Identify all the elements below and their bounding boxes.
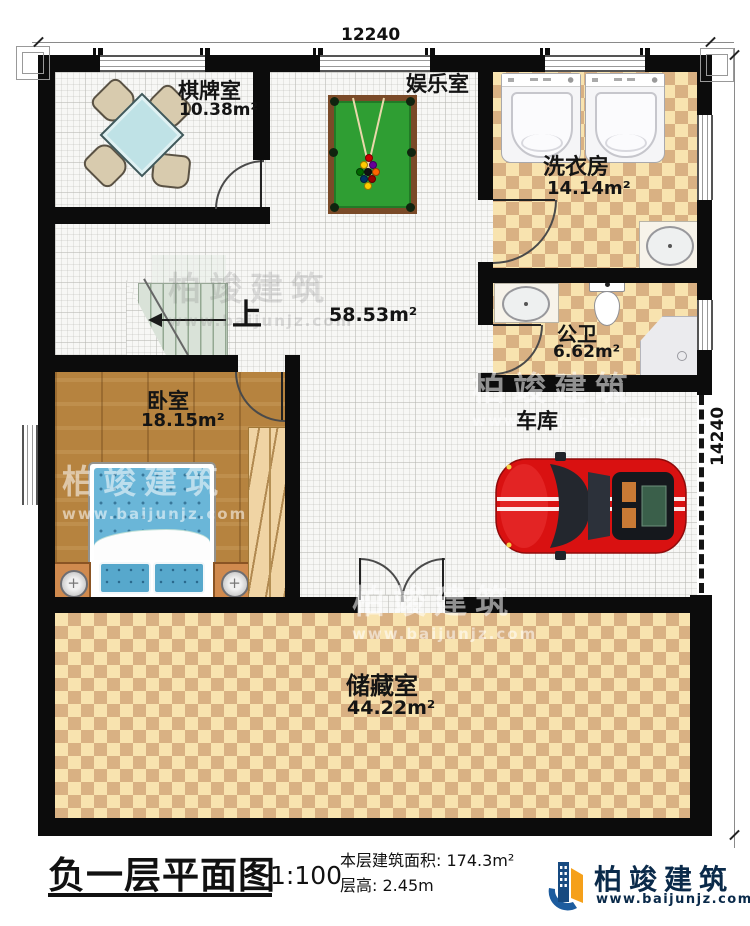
wall-notch [540,48,550,55]
watermark: 柏竣建筑 www.baijunjz.com [62,455,247,523]
wall [478,55,493,200]
stairs-arrow-icon [148,313,162,327]
page-title: 负一层平面图 [48,845,276,899]
washer-drum [595,92,657,158]
stairs-up-label: 上 [232,300,262,332]
pillow [153,562,205,594]
dimension-right-value: 14240 [708,406,728,466]
wall [38,207,270,224]
pool-pocket [329,148,338,157]
room-area-hall: 58.53m² [329,306,417,326]
door-leaf [493,324,541,326]
wall [300,597,358,613]
billiard-ball [364,182,372,190]
room-label-laundry: 洗衣房 [543,156,609,179]
window [320,55,430,72]
floor-plan-canvas: 12240 14240 柏竣建筑 www.baijunjz.com 柏竣建筑 w… [0,0,750,926]
washer-control-panel [502,74,580,87]
pool-table [328,95,417,214]
washer-control-panel [586,74,664,87]
watermark-text: 柏竣建筑 [62,455,247,503]
window [545,55,645,72]
wall-notch [313,48,323,55]
window [22,425,38,505]
room-label-entertainment: 娱乐室 [406,73,469,95]
door-leaf [493,199,555,201]
door-leaf [281,372,283,420]
wall-notch [640,48,650,55]
wall [285,355,300,613]
watermark-text: 柏竣建筑 [472,362,657,410]
window [697,300,713,350]
pillow [99,562,151,594]
room-area-laundry: 14.14m² [547,180,631,199]
washer-drum [511,92,573,158]
door-leaf [260,160,262,207]
floor-height-line: 层高: 2.45m [340,872,434,896]
room-label-chess: 棋牌室 [178,80,241,102]
floor-area-value: 174.3m² [447,851,515,870]
pool-pocket [330,97,339,106]
floor-height-value: 2.45m [383,876,434,895]
room-area-bedroom: 18.15m² [141,412,225,431]
room-area-bathroom: 6.62m² [553,344,620,362]
lamp-icon [60,570,88,598]
pool-pocket [407,148,416,157]
floor-area-label: 本层建筑面积: [340,851,441,870]
title-underline [48,893,272,897]
corner-symbol [16,46,50,80]
wall-notch [93,48,103,55]
floor-area-line: 本层建筑面积: 174.3m² [340,847,514,871]
watermark-url: www.baijunjz.com [472,412,657,430]
corner-symbol [700,48,734,82]
brand-url: www.baijunjz.com [596,892,750,907]
wardrobe [248,427,289,601]
laundry-sink [646,226,694,266]
wall [38,818,712,836]
wall [690,595,712,836]
room-area-storage: 44.22m² [347,699,435,719]
window [100,55,205,72]
watermark: 柏竣建筑 www.baijunjz.com [472,362,657,430]
watermark-url: www.baijunjz.com [62,505,247,523]
washing-machine [585,73,665,163]
window [697,115,713,200]
watermark-url: www.baijunjz.com [352,625,537,643]
watermark: 柏竣建筑 www.baijunjz.com [352,575,537,643]
pool-pocket [406,97,415,106]
car [492,450,690,562]
room-label-bedroom: 卧室 [147,390,189,412]
nightstand [52,562,91,602]
wall-notch [200,48,210,55]
room-label-storage: 储藏室 [346,674,418,699]
watermark-text: 柏竣建筑 [352,575,537,623]
brand-logo-icon [540,856,592,916]
wall [38,355,238,372]
garage-door-dashed-line [699,395,704,593]
washing-machine [501,73,581,163]
plan-scale: 1:100 [270,861,342,890]
room-area-chess: 10.38m² [179,102,258,120]
dimension-top-value: 12240 [341,25,400,45]
wall [38,597,300,613]
pool-pocket [406,203,415,212]
wall [478,268,712,283]
dimension-line-right [734,48,735,848]
pool-pocket [330,203,339,212]
wall-notch [425,48,435,55]
bathroom-sink [502,286,550,322]
nightstand [213,562,252,602]
wall [38,55,55,836]
floor-height-label: 层高: [340,876,377,895]
room-label-garage: 车库 [516,410,558,432]
lamp-icon [221,570,249,598]
